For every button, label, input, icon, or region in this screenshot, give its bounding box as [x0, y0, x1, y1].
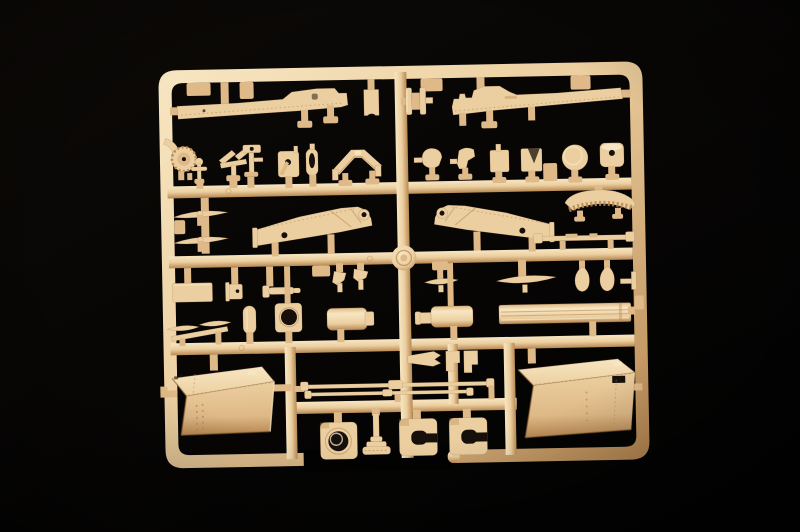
sprue-photo: [0, 0, 800, 532]
photo-vignette: [0, 0, 800, 532]
